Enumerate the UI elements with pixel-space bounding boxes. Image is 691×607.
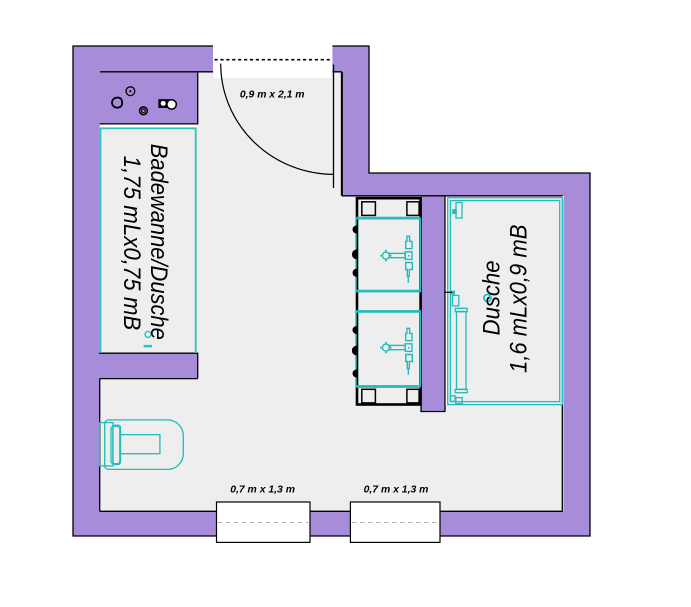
svg-text:0,7 m x 1,3 m: 0,7 m x 1,3 m	[230, 483, 295, 495]
svg-text:Dusche: Dusche	[479, 260, 506, 335]
svg-text:1,6 mLx0,9 mB: 1,6 mLx0,9 mB	[506, 225, 533, 374]
svg-text:0,7 m x 1,3 m: 0,7 m x 1,3 m	[364, 483, 429, 495]
svg-text:Badewanne/Dusche: Badewanne/Dusche	[145, 144, 172, 340]
svg-text:1,75 mLx0,75 mB: 1,75 mLx0,75 mB	[118, 156, 145, 331]
svg-text:0,9 m x 2,1 m: 0,9 m x 2,1 m	[240, 89, 305, 101]
